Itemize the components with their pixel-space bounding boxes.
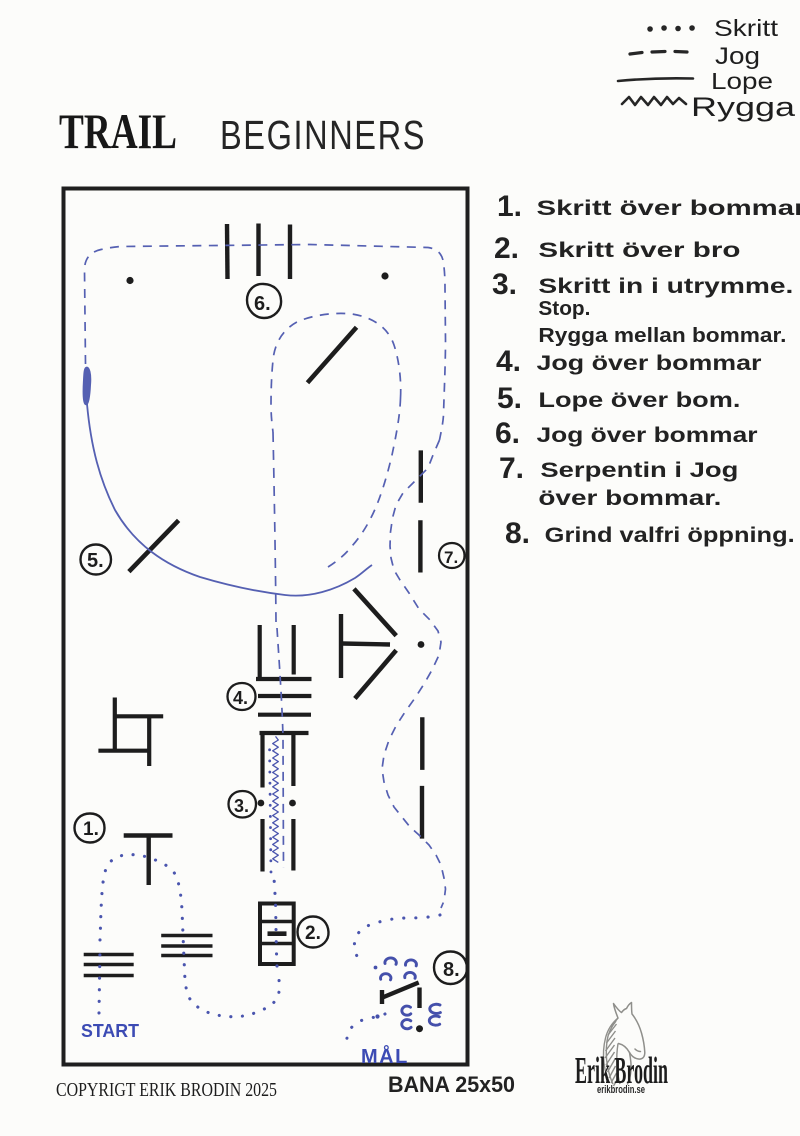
svg-text:Grind valfri öppning.: Grind valfri öppning. [545,524,795,547]
svg-text:över bommar.: över bommar. [538,487,721,510]
svg-text:Lope över bom.: Lope över bom. [538,389,740,412]
svg-text:START: START [81,1021,139,1041]
svg-text:2.: 2. [305,923,321,944]
svg-text:5.: 5. [87,550,104,572]
svg-text:erikbrodin.se: erikbrodin.se [597,1084,645,1096]
svg-text:Jog över bommar: Jog över bommar [537,352,762,375]
svg-text:Stop.: Stop. [538,298,590,320]
svg-text:8.: 8. [443,959,460,981]
svg-text:Rygga mellan bommar.: Rygga mellan bommar. [538,325,786,347]
svg-text:3.: 3. [234,796,249,816]
svg-text:4.: 4. [233,688,248,708]
svg-text:6.: 6. [495,417,520,450]
svg-text:Jog över bommar: Jog över bommar [537,424,758,447]
svg-text:2.: 2. [494,232,519,265]
svg-text:7.: 7. [444,548,458,567]
svg-text:6.: 6. [254,293,271,315]
svg-text:Lope: Lope [711,68,773,94]
svg-text:8.: 8. [505,517,530,550]
svg-text:7.: 7. [499,452,524,485]
svg-text:Serpentin i Jog: Serpentin i Jog [540,459,738,482]
svg-text:1.: 1. [83,819,99,840]
svg-text:Jog: Jog [715,43,760,70]
svg-text:BANA 25x50: BANA 25x50 [388,1072,515,1097]
svg-text:Rygga: Rygga [691,92,796,122]
svg-text:1.: 1. [497,190,522,223]
svg-text:COPYRIGT ERIK BRODIN 2025: COPYRIGT ERIK BRODIN 2025 [56,1079,277,1101]
svg-text:Skritt in i utrymme.: Skritt in i utrymme. [538,275,793,298]
svg-text:Skritt över bommar: Skritt över bommar [537,197,800,220]
svg-text:TRAIL: TRAIL [59,103,177,159]
svg-text:Skritt över bro: Skritt över bro [538,239,740,262]
svg-text:3.: 3. [492,268,517,301]
svg-text:BEGINNERS: BEGINNERS [220,112,426,158]
svg-text:4.: 4. [496,345,521,378]
svg-text:5.: 5. [497,382,522,415]
svg-text:MÅL: MÅL [361,1044,409,1068]
svg-text:Skritt: Skritt [714,15,779,41]
